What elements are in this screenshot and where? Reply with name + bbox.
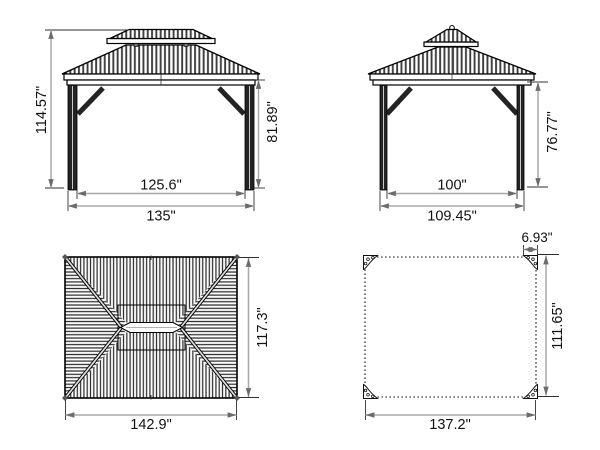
front-upper-tier-roof (110, 30, 212, 39)
front-outer-width-dimension: 135" (68, 191, 254, 225)
footprint-plate-width-label: 6.93" (521, 230, 552, 245)
side-eave-height-label: 76.77" (545, 111, 561, 152)
front-tier-support-left (134, 44, 138, 47)
roof-plan-depth-dimension: 117.3" (239, 258, 271, 398)
roof-plan-view: 117.3" 142.9" (62, 254, 271, 433)
roof-plan-width-label: 142.9" (130, 417, 171, 433)
side-eave-height-dimension: 76.77" (527, 82, 561, 187)
footprint-base-plates (364, 256, 538, 399)
front-inner-width-label: 125.6" (140, 178, 181, 194)
footprint-plate-width-dimension: 6.93" (521, 230, 552, 255)
front-brace-left (78, 88, 103, 114)
front-eave-height-dimension: 81.89" (255, 80, 282, 188)
roof-plan-width-dimension: 142.9" (66, 400, 237, 433)
base-plate-bottom-left (364, 385, 378, 399)
front-elevation-view: 114.57" 81.89" 125.6" 135" (34, 30, 281, 225)
front-inner-width-dimension: 125.6" (77, 178, 245, 200)
footprint-width-label: 137.2" (429, 417, 470, 433)
drawing-canvas: 114.57" 81.89" 125.6" 135" (0, 0, 600, 450)
side-upper-tier-roof (426, 30, 476, 43)
side-brace-right (493, 88, 517, 114)
front-main-roof (62, 45, 260, 74)
front-outer-width-label: 135" (146, 209, 175, 225)
gazebo-dimension-drawing: 114.57" 81.89" 125.6" 135" (0, 0, 600, 450)
side-outer-width-dimension: 109.45" (380, 191, 524, 225)
side-upper-tier-band (424, 42, 478, 47)
front-eave-height-label: 81.89" (265, 101, 281, 142)
footprint-width-dimension: 137.2" (366, 400, 536, 433)
footprint-depth-label: 111.65" (550, 302, 566, 349)
roof-plan-depth-label: 117.3" (255, 307, 271, 347)
front-brace-right (219, 88, 244, 114)
footprint-plan-view: 6.93" 111.65" 137.2" (364, 230, 567, 433)
front-total-height-label: 114.57" (34, 86, 50, 134)
side-inner-width-label: 100" (437, 178, 466, 194)
side-beam (373, 80, 531, 85)
footprint-depth-dimension: 111.65" (538, 255, 567, 397)
side-elevation-view: 76.77" 100" 109.45" (368, 26, 561, 225)
side-inner-width-dimension: 100" (387, 178, 517, 200)
base-plate-top-left (364, 256, 378, 270)
footprint-outline (365, 257, 536, 397)
base-plate-top-right (524, 256, 538, 270)
side-outer-width-label: 109.45" (427, 209, 477, 225)
front-upper-tier-band (107, 39, 215, 44)
front-tier-support-right (184, 44, 188, 47)
side-brace-left (387, 88, 411, 114)
base-plate-bottom-right (524, 385, 538, 399)
